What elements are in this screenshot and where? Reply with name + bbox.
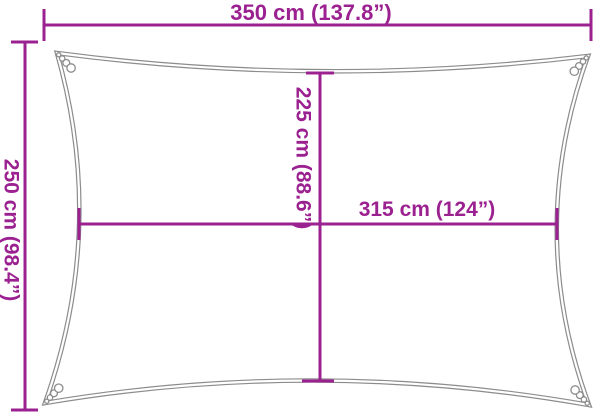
sail-edge-outer [45,53,589,405]
top-width-label: 350 cm (137.8”) [230,2,391,24]
corner-ring [571,386,579,394]
dimension-diagram: 350 cm (137.8”) 250 cm (98.4”) 225 cm (8… [0,0,600,416]
inner-height-label: 225 cm (88.6”) [293,87,314,229]
corner-ring [55,384,63,392]
inner-width-label: 315 cm (124”) [359,199,496,220]
corner-ring [67,64,75,72]
corner-ring [570,67,578,75]
shade-sail-outline [45,53,590,406]
left-height-label: 250 cm (98.4”) [1,159,22,301]
